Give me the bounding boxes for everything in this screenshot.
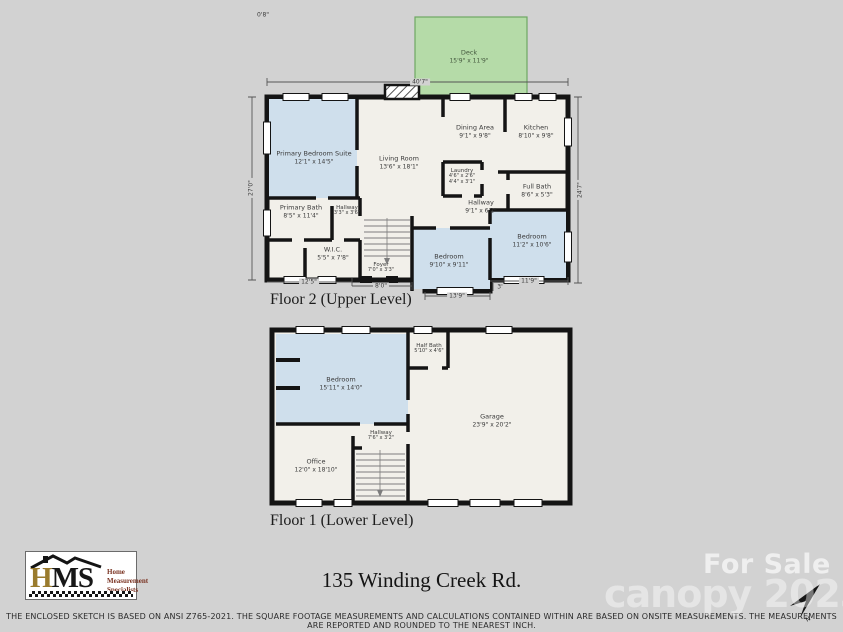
dimension-label-bottom-mid: 8'0": [373, 283, 389, 290]
room-label-hallway-upper-right: Hallway 9'1" x 6'2": [465, 199, 496, 216]
dimension-label-top: 40'7": [410, 79, 430, 86]
room-label-primary-bedroom-suite: Primary Bedroom Suite 12'1" x 14'5": [276, 150, 351, 167]
room-label-foyer: Foyer 7'0" x 3'3": [368, 262, 394, 274]
room-label-office: Office 12'0" x 18'10": [295, 458, 338, 475]
room-label-bedroom-center: Bedroom 9'10" x 9'11": [429, 253, 468, 270]
room-label-full-bath: Full Bath 8'6" x 5'3": [521, 183, 552, 200]
dimension-label-offset-top-left: 0'8": [255, 12, 271, 19]
room-label-bedroom-right: Bedroom 11'2" x 10'6": [512, 233, 551, 250]
room-label-dining-area: Dining Area 9'1" x 9'8": [456, 124, 494, 141]
floor1-title: Floor 1 (Lower Level): [270, 512, 414, 530]
dimension-label-bottom-left: 12'5": [299, 279, 319, 286]
room-label-primary-bath: Primary Bath 8'5" x 11'4": [280, 204, 322, 221]
room-label-hallway-upper-small: Hallway 3'3" x 3'6": [334, 205, 360, 217]
dimension-label-bottom-bedroom: 13'9": [447, 293, 467, 300]
disclaimer-text: THE ENCLOSED SKETCH IS BASED ON ANSI Z76…: [0, 612, 843, 630]
room-label-hallway-lower: Hallway 7'6" x 3'2": [368, 430, 394, 442]
room-label-garage: Garage 23'9" x 20'2": [472, 413, 511, 430]
room-label-half-bath: Half Bath 5'10" x 4'6": [414, 343, 443, 355]
dimension-label-offset-3ft: 3': [495, 284, 504, 291]
property-address: 135 Winding Creek Rd.: [0, 568, 843, 593]
chimney: [385, 85, 419, 99]
room-label-bedroom-lower: Bedroom 15'11" x 14'0": [320, 376, 363, 393]
floor-plan-page: 0'8" Deck 15'9" x 11'9" Primary Bedroom …: [0, 0, 843, 632]
room-label-wic: W.I.C. 5'5" x 7'8": [317, 246, 348, 263]
floor-plan-graphics: [0, 0, 843, 632]
dimension-label-bottom-right: 11'9": [519, 278, 539, 285]
floor2-title: Floor 2 (Upper Level): [270, 291, 412, 309]
room-label-kitchen: Kitchen 8'10" x 9'8": [518, 124, 553, 141]
room-label-laundry: Laundry 4'6" x 2'6" 4'4" x 3'1": [449, 168, 475, 186]
dimension-label-left: 27'0": [248, 178, 255, 198]
room-label-deck: Deck 15'9" x 11'9": [449, 49, 488, 66]
dimension-label-right: 24'7": [577, 180, 584, 200]
room-label-living-room: Living Room 13'6" x 18'1": [379, 155, 419, 172]
